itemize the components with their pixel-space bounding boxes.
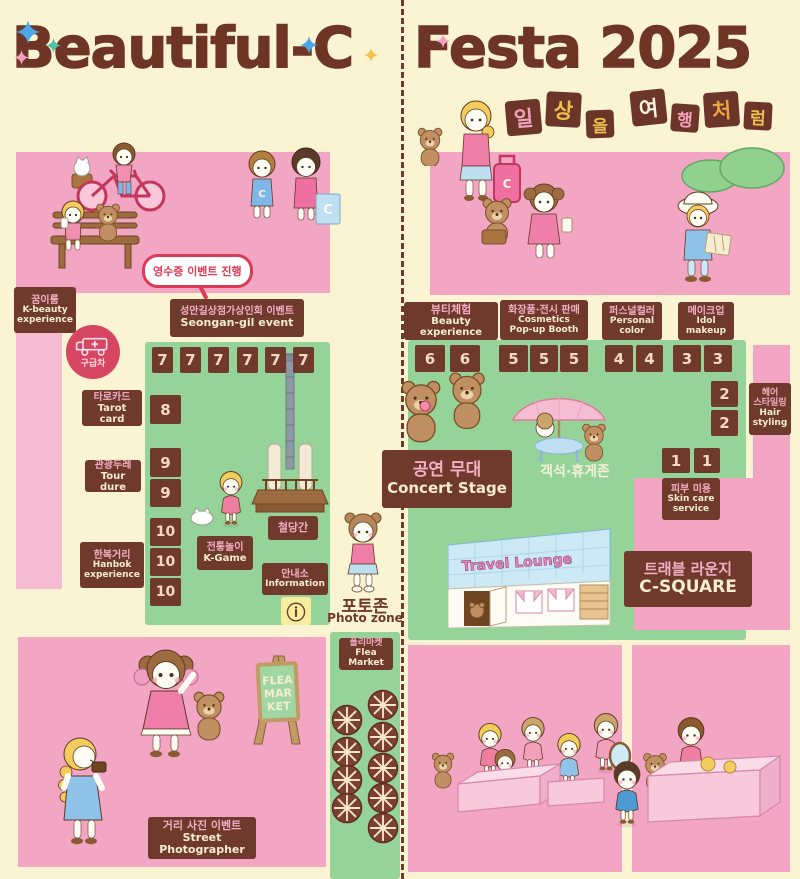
label-idol-makeup: 메이크업 Idol makeup [678,302,734,340]
booth-number: 7 [152,347,173,373]
booth-number: 10 [150,518,181,546]
label-seongan-event: 성안길상점가상인회 이벤트 Seongan-gil event [170,299,304,337]
label-hanbok: 한복거리 Hanbok experience [80,542,144,588]
label-personal-color: 퍼스널컬러 Personal color [602,302,662,340]
booth-number: 2 [711,381,738,407]
label-tour-dure: 관광두레 Tour dure [85,460,141,492]
label-hair-styling: 헤어 스타일링 Hair styling [749,383,791,435]
booth-number: 10 [150,548,181,576]
label-cheoldanggan: 철당간 [268,516,318,540]
illustration-kids-with-shopping-bags: C C [232,142,344,246]
parasol-top-icon [367,689,399,721]
bushes-icon [680,144,786,194]
parasol-top-icon [367,782,399,814]
parasol-top-icon [331,792,363,824]
sparkle-icon [46,38,61,53]
booth-number: 1 [694,448,720,473]
booth-number: 8 [150,395,181,424]
market-bear [432,753,454,788]
sparkle-icon [364,48,378,62]
parasol-top-icon [367,812,399,844]
label-skin-care: 피부 미용 Skin care service [662,478,720,520]
booth-number: 7 [180,347,201,373]
label-kbeauty: 꿈이룸 K-beauty experience [14,287,76,333]
illustration-photographer-girl [38,726,120,854]
information-icon: ⓘ [281,597,311,625]
booth-number: 9 [150,479,181,507]
label-concert-stage: 공연 무대 Concert Stage [382,450,512,508]
booth-number: 6 [415,345,445,372]
ambulance-badge: 구급차 [66,325,120,379]
parasol-top-icon [331,704,363,736]
illustration-photo-zone-girl [332,510,394,594]
label-tarot: 타로카드 Tarot card [82,390,142,426]
festival-map: Beautiful-C Festa 2025 일상을여행처럼 꿈이룸 K-bea… [0,0,800,879]
receipt-event-bubble: 영수증 이벤트 진행 [142,254,253,288]
booth-number: 9 [150,448,181,477]
label-information: 안내소 Information [262,563,328,595]
booth-number: 7 [265,347,286,373]
left-pink-strip [16,293,62,589]
illustration-travel-lounge-building: Travel Lounge [448,527,614,628]
slogan-char: 행 [670,103,700,133]
illustration-girl-on-bench-with-bear [35,196,140,276]
booth-number: 1 [662,448,690,473]
parasol-top-icon [367,721,399,753]
ambulance-icon [74,336,112,356]
booth-number: 6 [450,345,480,372]
illustration-rest-area-parasol-bear [505,388,617,468]
illustration-girl-with-bear-basket [470,178,594,268]
booth-number: 7 [293,347,314,373]
illustration-posing-girl-with-bear [115,643,237,765]
slogan-char: 럼 [743,101,772,130]
sparkle-icon [300,36,318,54]
booth-number: 5 [499,345,528,372]
booth-number: 3 [704,345,732,372]
slogan-banner: 일상을여행처럼 [506,90,772,125]
page-title-right: Festa 2025 [414,16,751,81]
booth-number: 7 [237,347,258,373]
label-kgame: 전통놀이 K-Game [197,536,253,570]
illustration-boy-with-map [652,188,748,296]
illustration-flea-market-sign: FLEA MAR KET [244,650,316,748]
svg-text:C: C [323,203,333,218]
illustration-concert-bears [393,370,493,460]
label-travel-lounge: 트래블 라운지 C-SQUARE [624,551,752,607]
booth-number: 7 [208,347,229,373]
booth-number: 3 [673,345,701,372]
slogan-char: 여 [629,88,667,126]
slogan-char: 을 [586,110,615,139]
slogan-char: 상 [545,91,582,128]
booth-number: 2 [711,410,738,436]
market-character [614,762,640,828]
illustration-market-scene [408,712,790,870]
label-beauty-experience: 뷰티체험 Beauty experience [404,302,498,340]
sparkle-icon [16,20,40,44]
booth-number: 4 [605,345,633,372]
slogan-char: 일 [505,99,543,137]
photo-zone-title-en: Photo zone [325,611,405,625]
label-street-photographer: 거리 사진 이벤트 Street Photographer [148,817,256,859]
sparkle-icon [14,50,29,65]
label-flea-market: 플리마켓 Flea Market [339,638,393,670]
booth-number: 10 [150,578,181,606]
slogan-char: 처 [703,91,740,128]
svg-text:KET: KET [267,699,292,713]
seating-rest-zone-text: 객석·휴게존 [520,461,630,481]
booth-number: 4 [636,345,663,372]
booth-number: 5 [560,345,588,372]
illustration-cheoldanggan-tower [250,352,330,522]
parasol-top-icon [367,752,399,784]
illustration-kgame-girl-with-cat [188,470,254,530]
label-cosmetics-popup: 화장품·전시 판매 Cosmetics Pop-up Booth [500,300,588,340]
svg-text:C: C [258,189,265,200]
booth-number: 5 [530,345,558,372]
sparkle-icon [436,34,450,48]
